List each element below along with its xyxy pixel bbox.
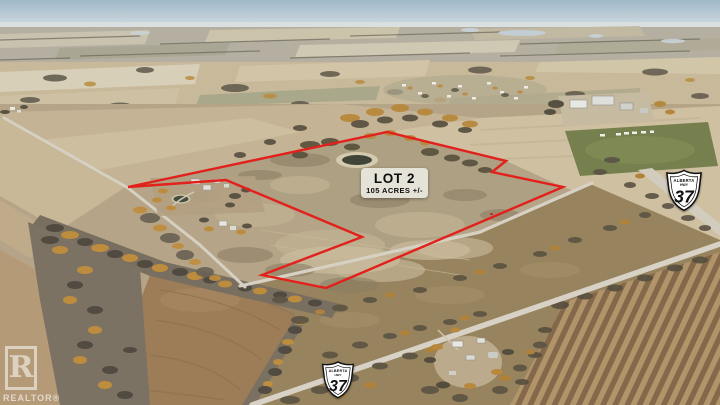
highway-37-shield-bottom: ALBERTA HWY 37 (321, 358, 355, 402)
realtor-label: REALTOR® (3, 393, 63, 403)
shield-province-label: ALBERTA (329, 369, 348, 373)
shield-number: 37 (329, 378, 348, 395)
lot-acreage: 105 ACRES +/- (366, 186, 423, 195)
shield-number: 37 (674, 187, 695, 207)
shield-hwy-label: HWY (334, 373, 341, 377)
realtor-logo-r: R (5, 346, 37, 390)
lot-title: LOT 2 (374, 172, 415, 186)
aerial-listing-photo: LOT 2 105 ACRES +/- ALBERTA HWY 37 ALBER… (0, 0, 720, 405)
aerial-photo-scene (0, 0, 720, 405)
shield-province-label: ALBERTA (674, 178, 695, 183)
highway-37-shield-right: ALBERTA HWY 37 (665, 169, 703, 212)
lot-label-badge: LOT 2 105 ACRES +/- (361, 168, 428, 198)
red-vehicle-dot (490, 213, 493, 215)
realtor-watermark: R REALTOR® (3, 346, 63, 403)
